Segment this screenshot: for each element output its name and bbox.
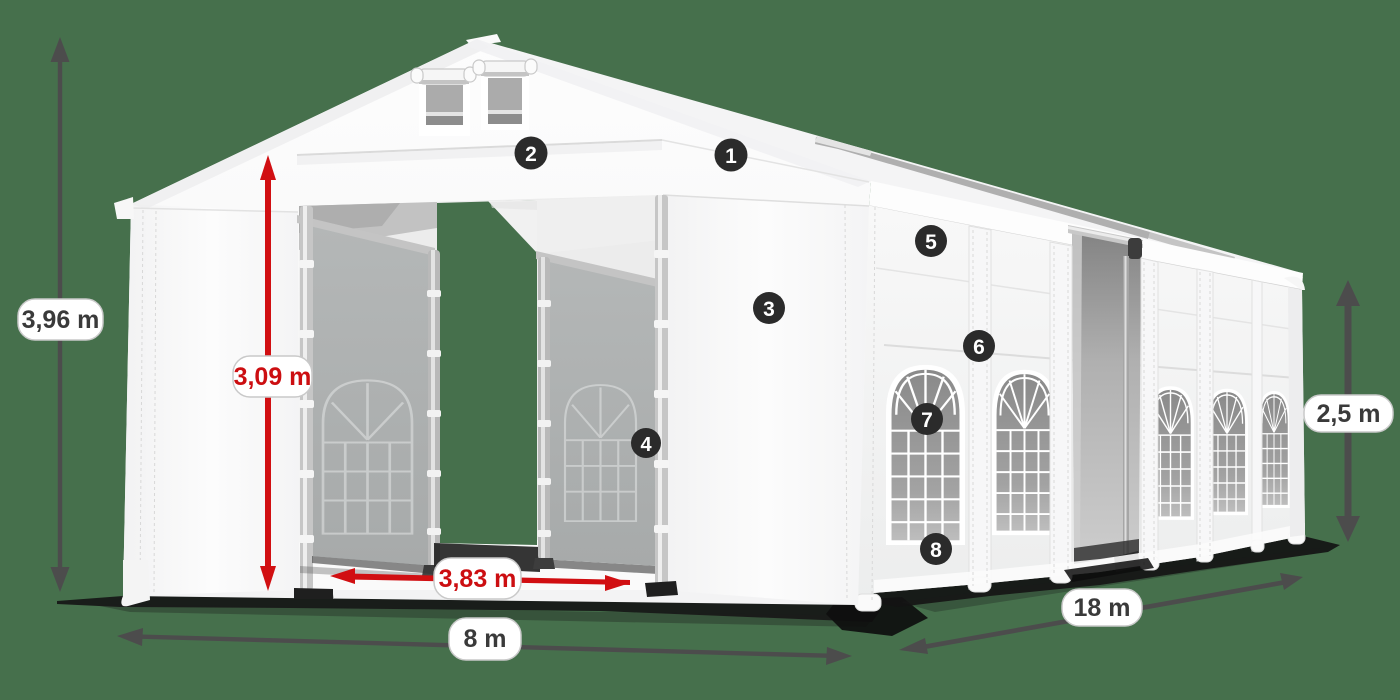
svg-text:3,09 m: 3,09 m: [234, 363, 312, 391]
svg-text:2,5 m: 2,5 m: [1317, 400, 1381, 428]
svg-text:4: 4: [640, 434, 652, 456]
svg-text:8: 8: [930, 539, 942, 562]
svg-text:3,96 m: 3,96 m: [22, 306, 100, 334]
svg-text:7: 7: [921, 409, 933, 432]
svg-text:6: 6: [973, 336, 985, 359]
svg-text:3: 3: [763, 298, 775, 321]
svg-text:1: 1: [725, 145, 737, 168]
svg-text:2: 2: [525, 143, 537, 166]
svg-text:18 m: 18 m: [1074, 594, 1131, 622]
svg-text:8 m: 8 m: [463, 625, 506, 653]
svg-text:3,83 m: 3,83 m: [439, 565, 517, 593]
svg-text:5: 5: [925, 231, 937, 254]
